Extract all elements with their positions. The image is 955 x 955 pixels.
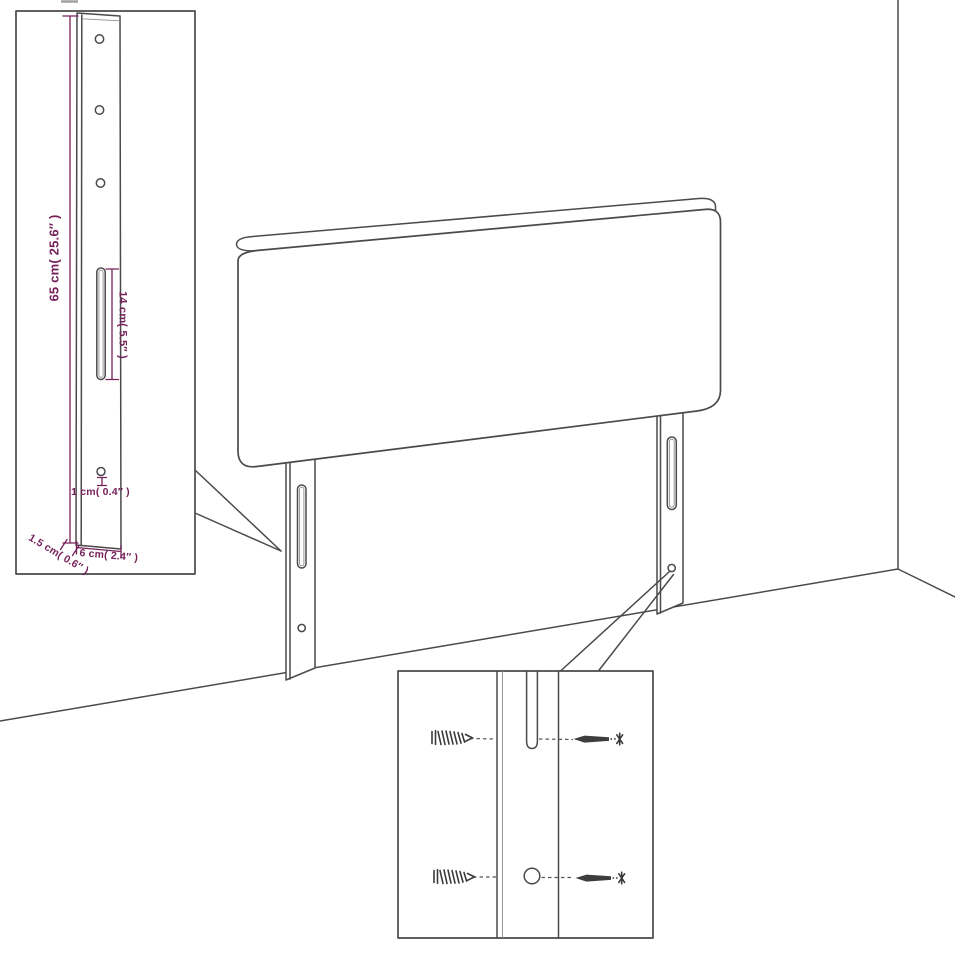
callout-line <box>560 572 669 672</box>
dim-hole-label: 1 cm( 0.4″ ) <box>71 486 130 498</box>
callout-line <box>598 575 674 672</box>
headboard-panel <box>237 198 721 466</box>
mounting-detail-inset <box>398 671 653 938</box>
callout-line <box>195 470 281 551</box>
headboard-diagram: 65 cm( 25.6″ ) 14 cm( 5.5″ ) 1 cm( 0.4″ … <box>0 0 955 955</box>
right-leg <box>657 407 683 614</box>
leg-detail-callout <box>195 470 281 551</box>
dim-slot-label: 14 cm( 5.5″ ) <box>117 291 129 359</box>
bracket-fold-line <box>81 15 82 546</box>
left-leg <box>286 459 315 680</box>
diagram-stage: 65 cm( 25.6″ ) 14 cm( 5.5″ ) 1 cm( 0.4″ … <box>0 0 955 955</box>
headboard-front-face <box>238 209 721 467</box>
leg-detail-inset: 65 cm( 25.6″ ) 14 cm( 5.5″ ) 1 cm( 0.4″ … <box>16 11 195 577</box>
floor-line-right <box>898 569 955 597</box>
callout-line <box>195 513 281 551</box>
mounting-inset-border <box>398 671 653 938</box>
dim-height-label: 65 cm( 25.6″ ) <box>47 214 62 301</box>
